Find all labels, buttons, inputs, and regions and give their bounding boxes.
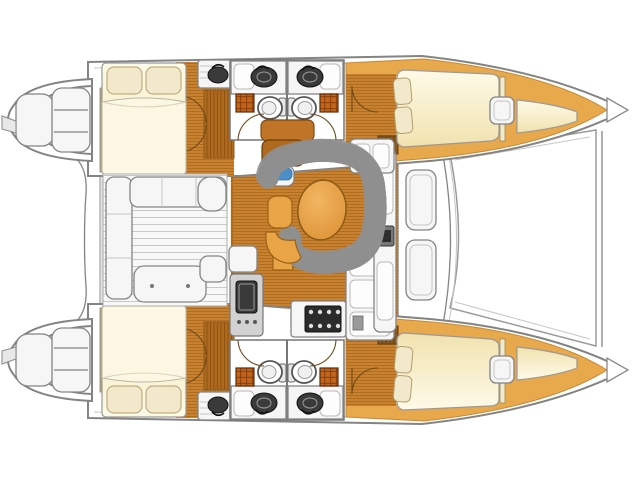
aft-double-berth (102, 63, 186, 175)
trampoline (450, 130, 596, 346)
galley-sink-module (230, 274, 263, 336)
cockpit-corner-seat (200, 256, 226, 282)
toilet (288, 97, 316, 119)
pillow (393, 78, 412, 105)
coachroof-hatch (406, 170, 436, 230)
catamaran-floorplan (0, 0, 640, 480)
salon-wood-cabinet (261, 120, 314, 141)
platform-step (16, 94, 54, 146)
coachroof-hatch (406, 240, 436, 300)
swim-ladder-steps (52, 88, 90, 152)
duvet (102, 98, 186, 175)
galley-stove-module (291, 301, 346, 337)
cockpit-side-bench (106, 177, 132, 299)
forward-double-berth (397, 70, 499, 147)
outboard-sink (208, 67, 228, 83)
toilet (258, 97, 286, 119)
pillow (107, 67, 142, 94)
shower-tray (320, 94, 338, 112)
pillow (146, 67, 181, 94)
head-sink (297, 66, 323, 87)
cockpit (103, 174, 227, 306)
cockpit-aft-bench (134, 266, 206, 302)
pillow (394, 107, 413, 134)
shower-tray (236, 94, 254, 112)
cockpit-corner-bench (198, 177, 226, 211)
settee-cushion (268, 196, 292, 228)
head-sink (251, 66, 277, 87)
outboard-sink-counter (198, 60, 232, 88)
companionway-step (229, 246, 257, 272)
bow-deck-hatch (490, 97, 514, 124)
